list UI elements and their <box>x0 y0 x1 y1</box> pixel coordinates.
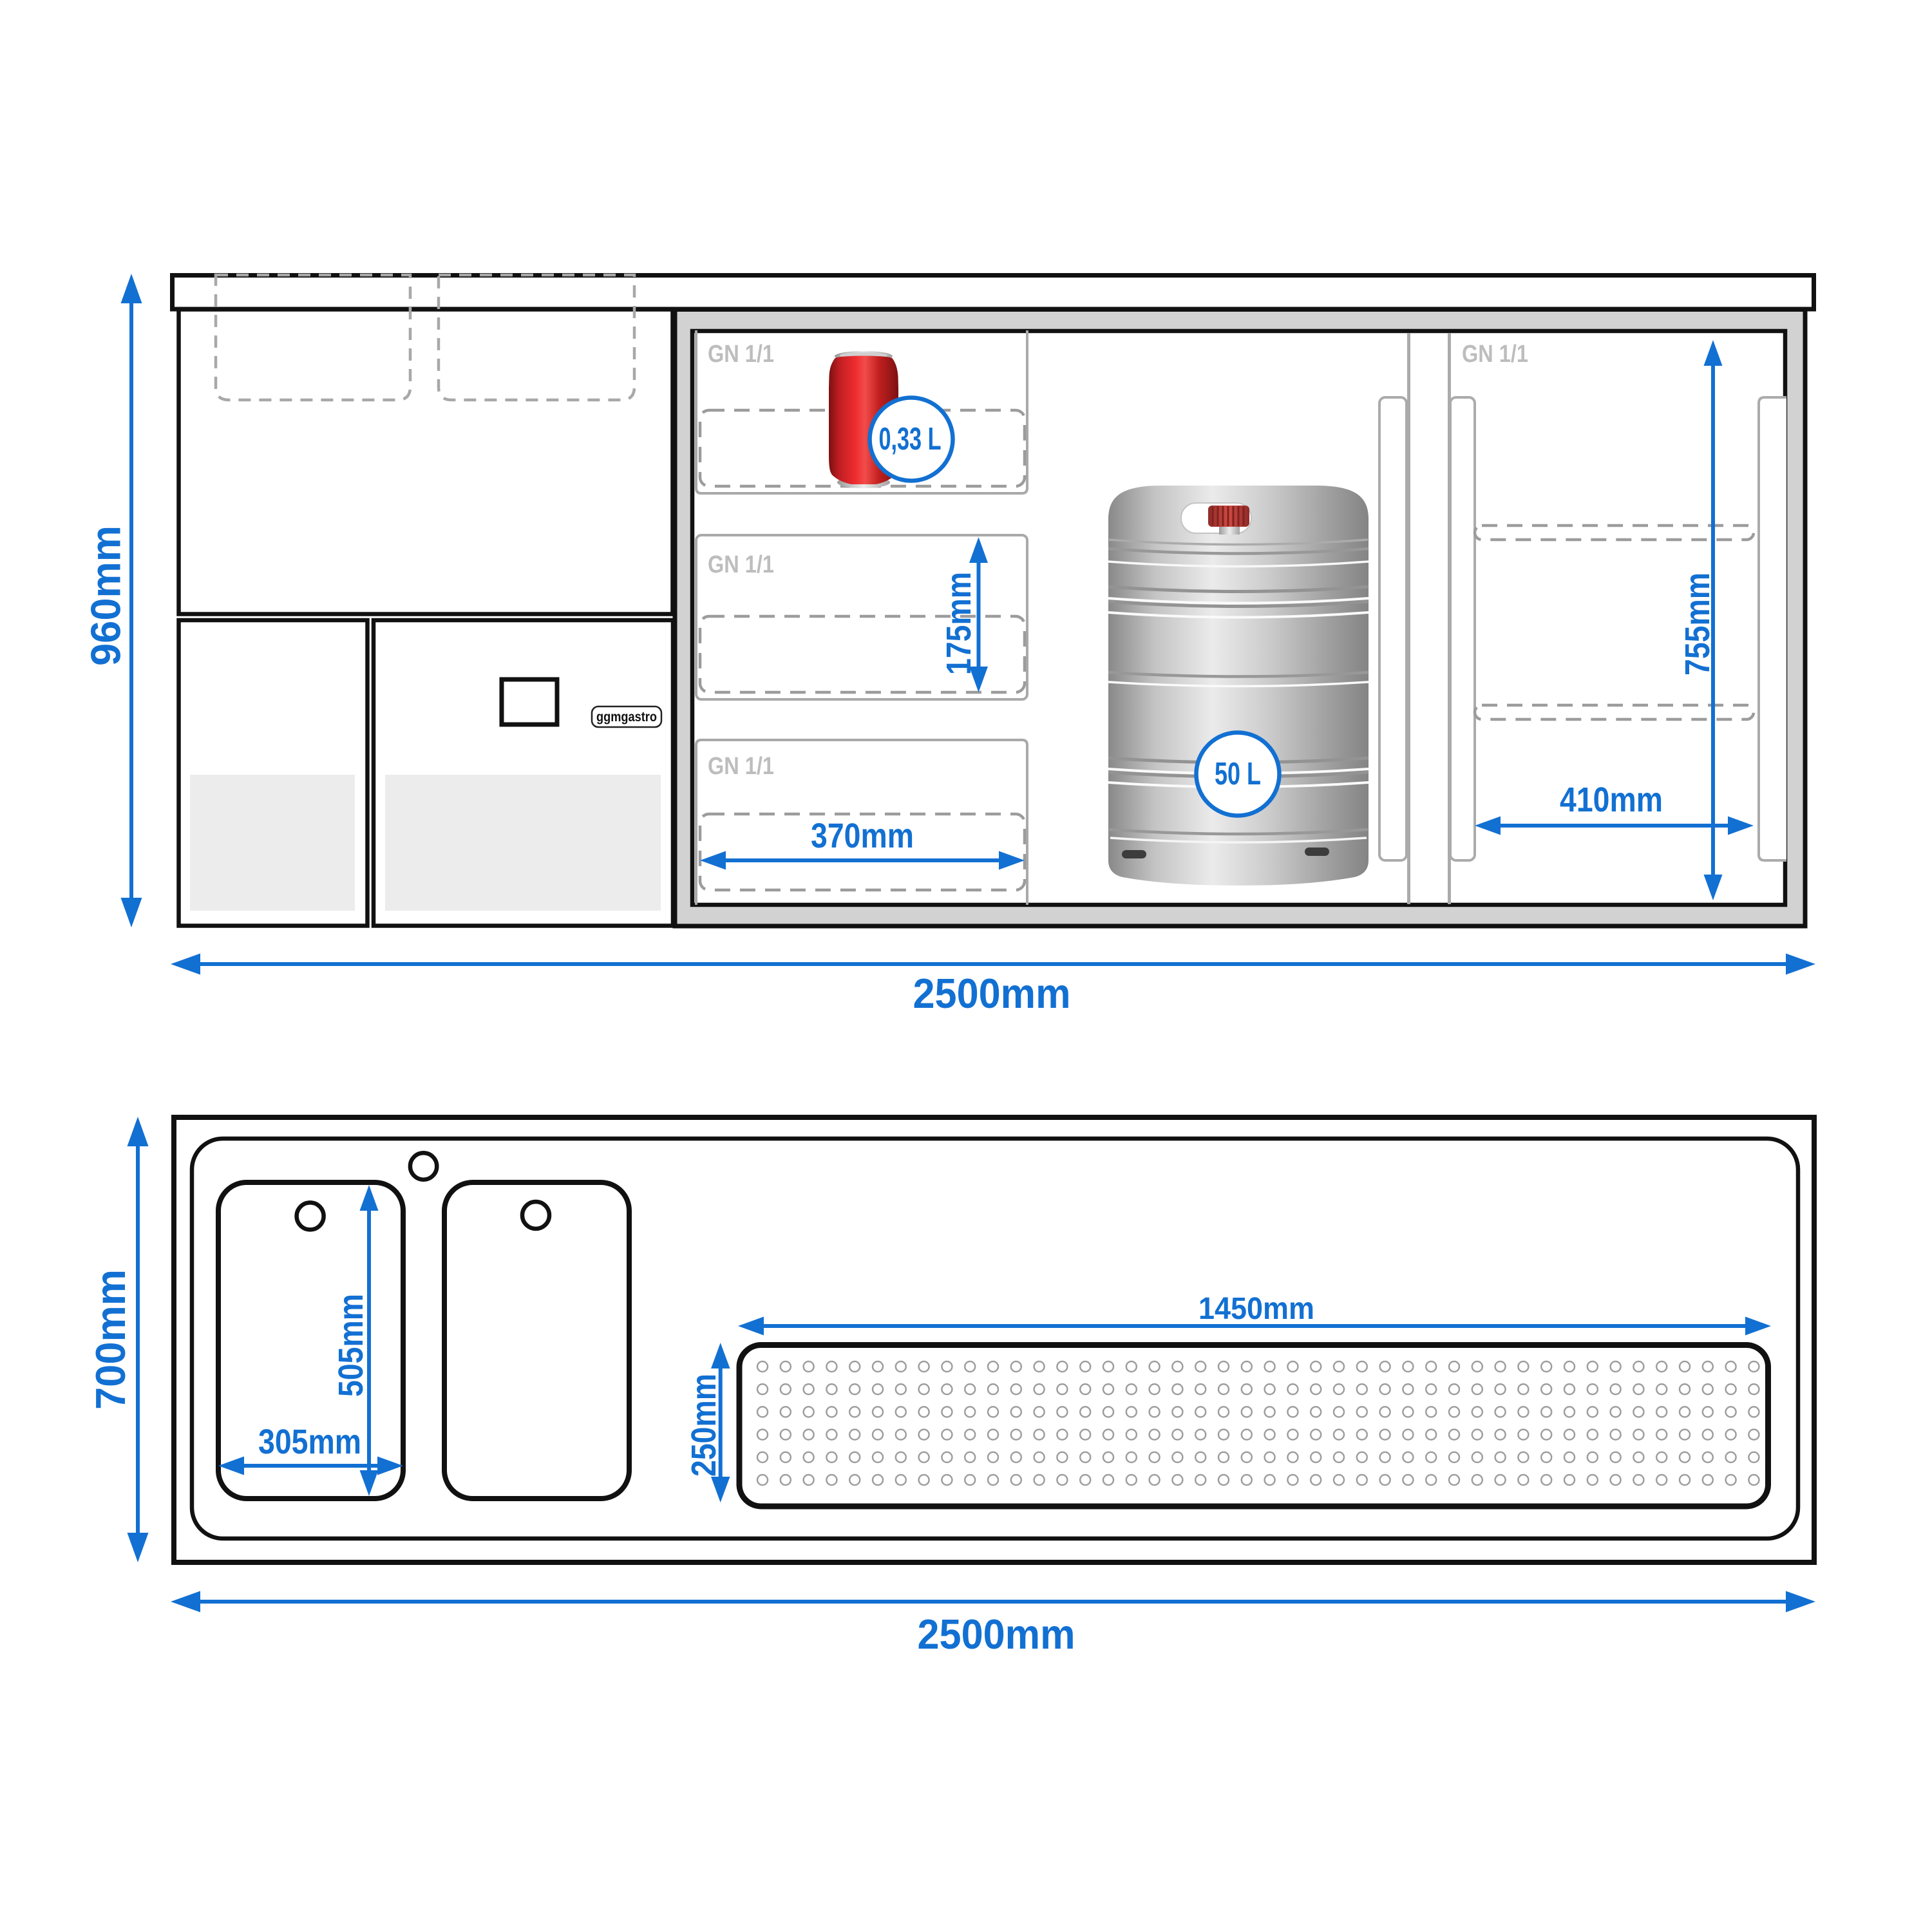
svg-text:175mm: 175mm <box>940 572 978 675</box>
svg-text:ggmgastro: ggmgastro <box>596 710 657 724</box>
svg-text:2500mm: 2500mm <box>913 970 1071 1017</box>
svg-text:755mm: 755mm <box>1678 573 1717 676</box>
svg-text:50 L: 50 L <box>1215 757 1261 791</box>
svg-text:GN 1/1: GN 1/1 <box>708 551 774 578</box>
svg-text:410mm: 410mm <box>1560 781 1663 819</box>
svg-text:250mm: 250mm <box>685 1374 723 1477</box>
svg-text:1450mm: 1450mm <box>1198 1292 1314 1326</box>
svg-text:GN 1/1: GN 1/1 <box>708 341 774 368</box>
svg-text:305mm: 305mm <box>258 1423 361 1461</box>
svg-text:GN 1/1: GN 1/1 <box>708 753 774 780</box>
svg-text:0,33 L: 0,33 L <box>879 422 942 457</box>
svg-text:505mm: 505mm <box>332 1294 370 1397</box>
svg-text:370mm: 370mm <box>811 817 914 855</box>
svg-text:2500mm: 2500mm <box>918 1611 1075 1658</box>
svg-text:960mm: 960mm <box>82 526 129 666</box>
svg-text:GN 1/1: GN 1/1 <box>1462 341 1528 368</box>
svg-text:700mm: 700mm <box>87 1269 134 1410</box>
